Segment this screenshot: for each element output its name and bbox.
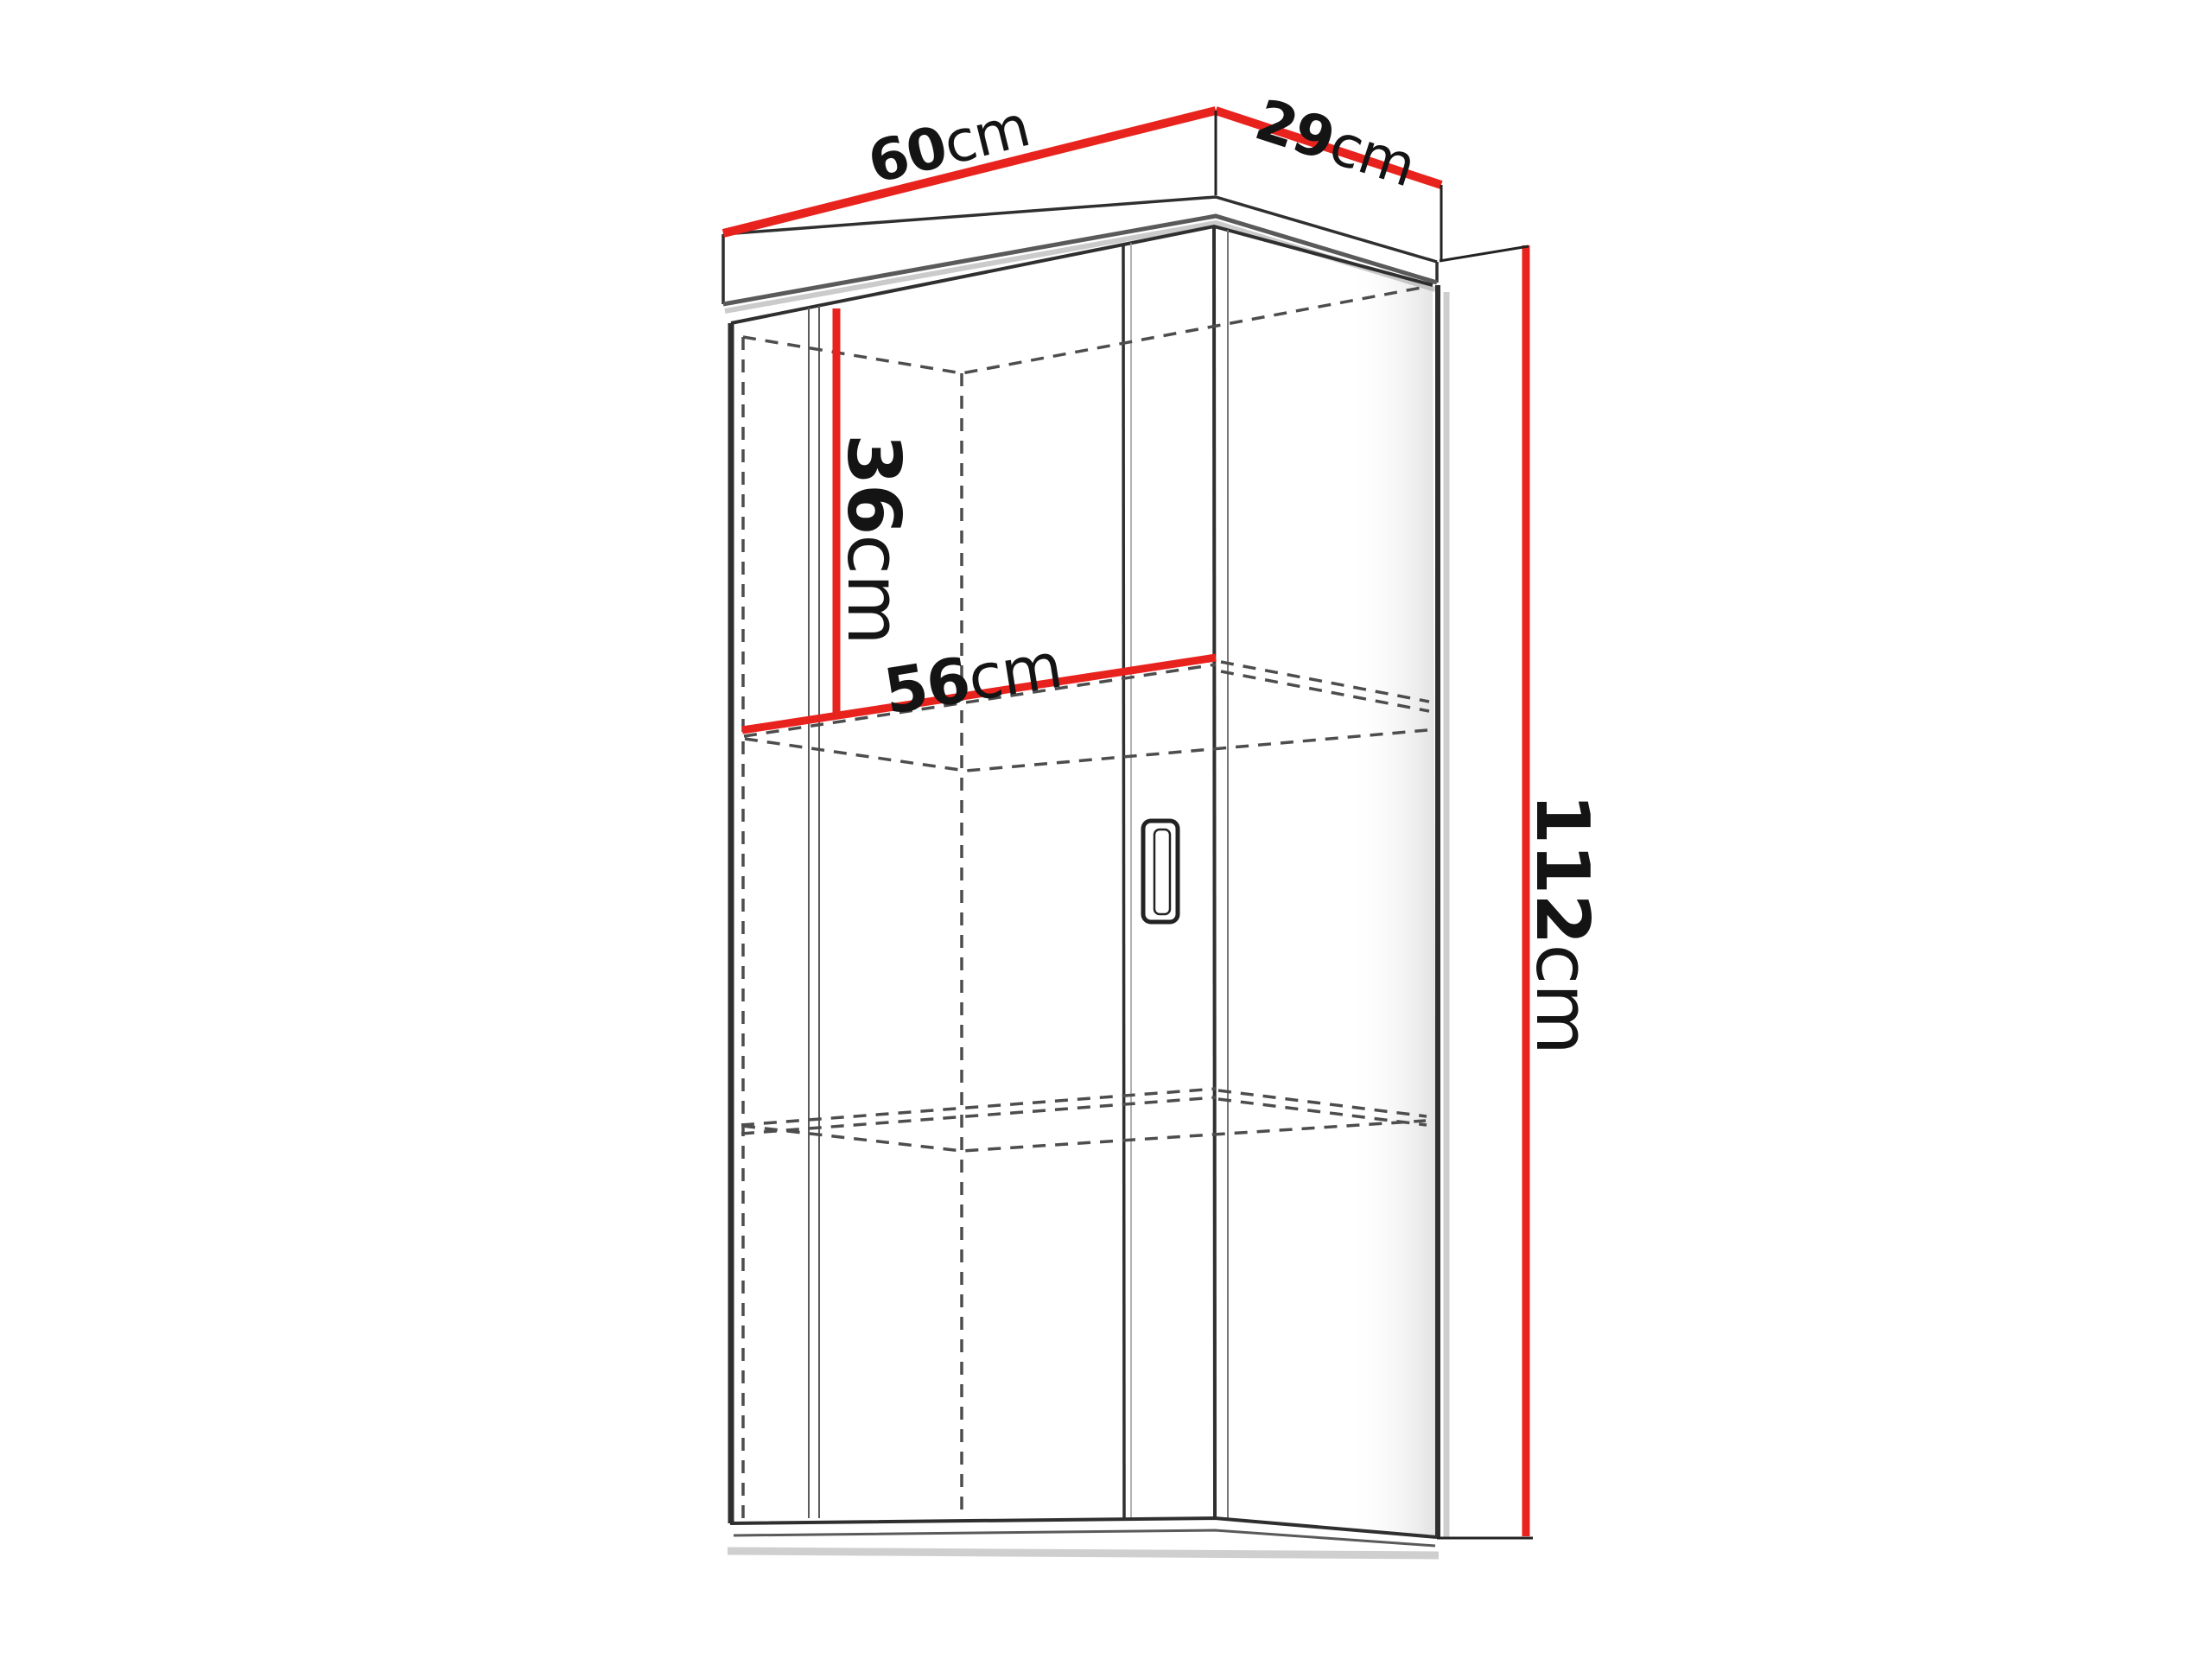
- depth-dimension-label: 29cm: [1248, 86, 1423, 200]
- lower-shelf-hidden-lines: [741, 1089, 1427, 1151]
- door-handle-outer: [1143, 821, 1178, 922]
- height-dimension-label: 112cm: [1519, 793, 1605, 1054]
- bottom-drop-shadow: [728, 1551, 1439, 1555]
- dimension-labels: 60cm 29cm 112cm 36cm 56cm: [830, 86, 1605, 1054]
- front-right-corner-edge: [1214, 226, 1215, 1519]
- lower-shelf-front-dashed-2: [741, 1097, 1216, 1134]
- diagram-page: 60cm 29cm 112cm 36cm 56cm: [0, 0, 2212, 1659]
- top-panel-shadow: [725, 223, 1435, 311]
- right-face-shading: [1348, 263, 1437, 1537]
- upper-section-dimension-label: 36cm: [830, 434, 916, 645]
- door-gap-line: [1123, 245, 1124, 1521]
- door-handle-inner: [1154, 829, 1170, 914]
- lower-shelf-back-dashed: [742, 1121, 1426, 1151]
- lower-shelf-front-dashed-1: [741, 1089, 1216, 1125]
- upper-shelf-back-dashed: [745, 730, 1427, 771]
- door-handle: [1143, 821, 1178, 922]
- cabinet-dimension-diagram: 60cm 29cm 112cm 36cm 56cm: [0, 0, 2212, 1659]
- height-top-extension-tick: [1440, 246, 1529, 261]
- bottom-panel-edge: [734, 1530, 1435, 1546]
